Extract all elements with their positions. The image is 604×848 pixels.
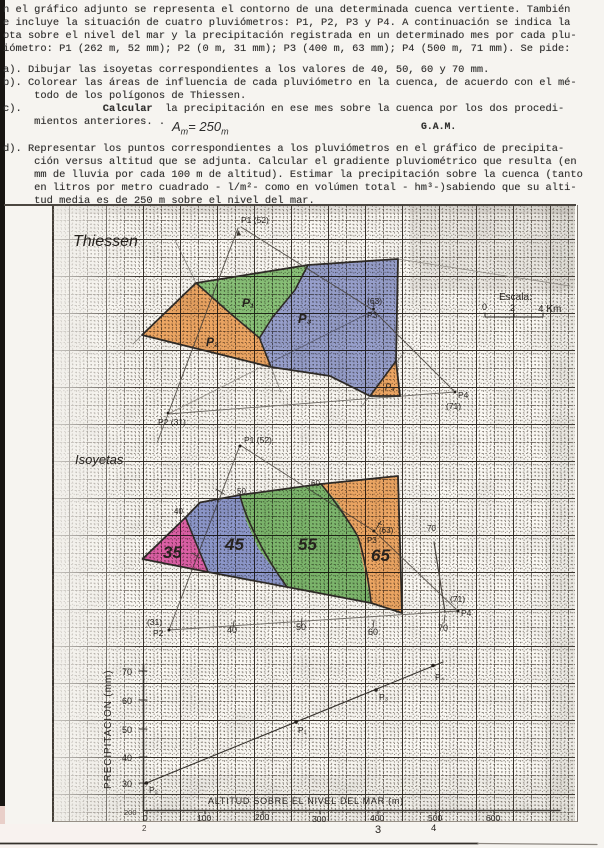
svg-text:50: 50: [122, 725, 132, 735]
svg-text:PRECIPITACION (mm): PRECIPITACION (mm): [103, 670, 114, 789]
svg-text:P₄: P₄: [435, 672, 445, 682]
svg-text:(63): (63): [379, 526, 394, 535]
svg-text:60: 60: [368, 627, 378, 637]
svg-text:2: 2: [510, 303, 515, 313]
svg-text:(71): (71): [450, 594, 465, 604]
svg-text:100: 100: [197, 813, 211, 823]
svg-text:30: 30: [122, 779, 132, 789]
svg-text:4 Km: 4 Km: [538, 304, 561, 315]
svg-text:P1 (52): P1 (52): [244, 435, 272, 445]
svg-text:0: 0: [482, 302, 487, 312]
svg-text:P4: P4: [458, 390, 469, 400]
svg-text:70: 70: [122, 667, 132, 677]
svg-text:P₁: P₁: [298, 725, 307, 735]
svg-text:50: 50: [237, 487, 246, 496]
svg-text:(63): (63): [367, 296, 382, 306]
svg-text:45: 45: [224, 535, 244, 554]
svg-text:P₁: P₁: [242, 296, 254, 310]
svg-text:60: 60: [122, 696, 132, 706]
svg-text:P4: P4: [461, 608, 472, 618]
svg-text:65: 65: [371, 546, 390, 565]
svg-text:P₂: P₂: [206, 335, 219, 349]
svg-text:55: 55: [298, 535, 317, 554]
svg-text:P₃: P₃: [379, 692, 388, 702]
svg-text:2: 2: [142, 824, 147, 833]
svg-text:40: 40: [122, 753, 132, 763]
svg-text:ALTITUD SOBRE EL NIVEL DEL MAR: ALTITUD SOBRE EL NIVEL DEL MAR (m): [208, 796, 404, 806]
svg-text:40: 40: [227, 625, 237, 635]
svg-text:P3: P3: [367, 310, 378, 320]
svg-text:P₂: P₂: [149, 785, 158, 795]
svg-text:P1 (52): P1 (52): [241, 215, 269, 225]
svg-text:P2: P2: [153, 628, 164, 638]
svg-text:Thiessen: Thiessen: [73, 233, 138, 250]
svg-text:P3: P3: [367, 536, 377, 545]
svg-text:(71): (71): [446, 401, 461, 411]
svg-text:70: 70: [427, 524, 436, 533]
svg-text:200: 200: [124, 808, 137, 817]
svg-text:P2 (31): P2 (31): [158, 417, 186, 427]
svg-text:0: 0: [143, 813, 148, 823]
svg-text:4: 4: [431, 823, 436, 834]
svg-text:35: 35: [163, 543, 182, 562]
svg-text:400: 400: [370, 813, 384, 823]
svg-text:Escala:: Escala:: [499, 292, 532, 303]
svg-text:70: 70: [438, 623, 448, 633]
svg-text:60: 60: [311, 479, 320, 488]
svg-text:3: 3: [375, 824, 381, 836]
svg-text:600: 600: [486, 813, 500, 823]
svg-text:200: 200: [255, 812, 269, 822]
svg-text:(31): (31): [147, 617, 162, 627]
svg-text:500: 500: [428, 813, 442, 823]
svg-text:300: 300: [312, 814, 326, 824]
svg-text:Isoyetas: Isoyetas: [75, 452, 124, 467]
svg-text:40: 40: [174, 507, 183, 516]
svg-text:P₃: P₃: [298, 311, 312, 326]
svg-text:P₄: P₄: [385, 382, 395, 392]
